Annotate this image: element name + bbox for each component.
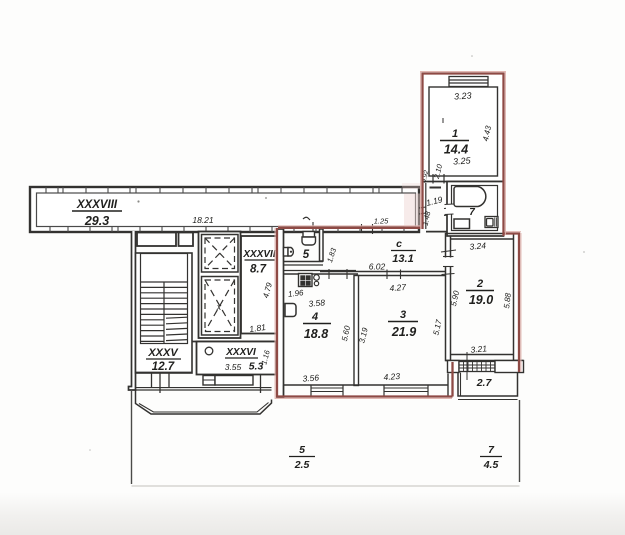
- svg-text:XXXVI: XXXVI: [225, 347, 256, 358]
- svg-text:12.7: 12.7: [152, 361, 175, 373]
- svg-text:4.23: 4.23: [383, 371, 400, 382]
- svg-text:8.7: 8.7: [250, 264, 267, 276]
- svg-text:1.25: 1.25: [374, 217, 389, 226]
- svg-text:14.4: 14.4: [444, 143, 468, 157]
- svg-text:6.02: 6.02: [369, 262, 386, 272]
- svg-text:5.88: 5.88: [502, 292, 513, 309]
- svg-text:7: 7: [469, 207, 475, 218]
- svg-text:3: 3: [400, 309, 406, 321]
- svg-text:3.56: 3.56: [302, 372, 319, 383]
- svg-text:3.24: 3.24: [469, 240, 487, 251]
- svg-text:4.27: 4.27: [389, 282, 406, 293]
- svg-text:2.7: 2.7: [476, 377, 493, 389]
- svg-text:4: 4: [311, 311, 318, 323]
- svg-text:21.9: 21.9: [391, 325, 416, 339]
- svg-text:XXXVIII: XXXVIII: [76, 199, 118, 211]
- svg-text:18.8: 18.8: [304, 327, 328, 341]
- svg-text:3.55: 3.55: [225, 362, 242, 372]
- svg-text:29.3: 29.3: [84, 214, 109, 228]
- svg-text:3.25: 3.25: [453, 155, 472, 166]
- svg-text:c: c: [396, 238, 402, 250]
- svg-text:4.5: 4.5: [483, 459, 499, 471]
- svg-text:3.58: 3.58: [308, 297, 326, 308]
- svg-text:2.5: 2.5: [294, 459, 310, 471]
- svg-text:2: 2: [476, 278, 483, 290]
- svg-text:1: 1: [452, 128, 458, 140]
- svg-text:13.1: 13.1: [392, 253, 413, 265]
- svg-text:5: 5: [303, 249, 310, 261]
- svg-text:5: 5: [299, 444, 305, 456]
- svg-text:3.21: 3.21: [470, 343, 488, 354]
- svg-text:1.96: 1.96: [288, 288, 305, 299]
- svg-text:19.0: 19.0: [469, 293, 493, 307]
- svg-text:3.23: 3.23: [454, 90, 472, 101]
- svg-text:18.21: 18.21: [192, 215, 214, 225]
- svg-text:x: x: [216, 302, 222, 312]
- svg-text:XXXV: XXXV: [147, 347, 179, 359]
- svg-text:XXXVII: XXXVII: [242, 249, 275, 260]
